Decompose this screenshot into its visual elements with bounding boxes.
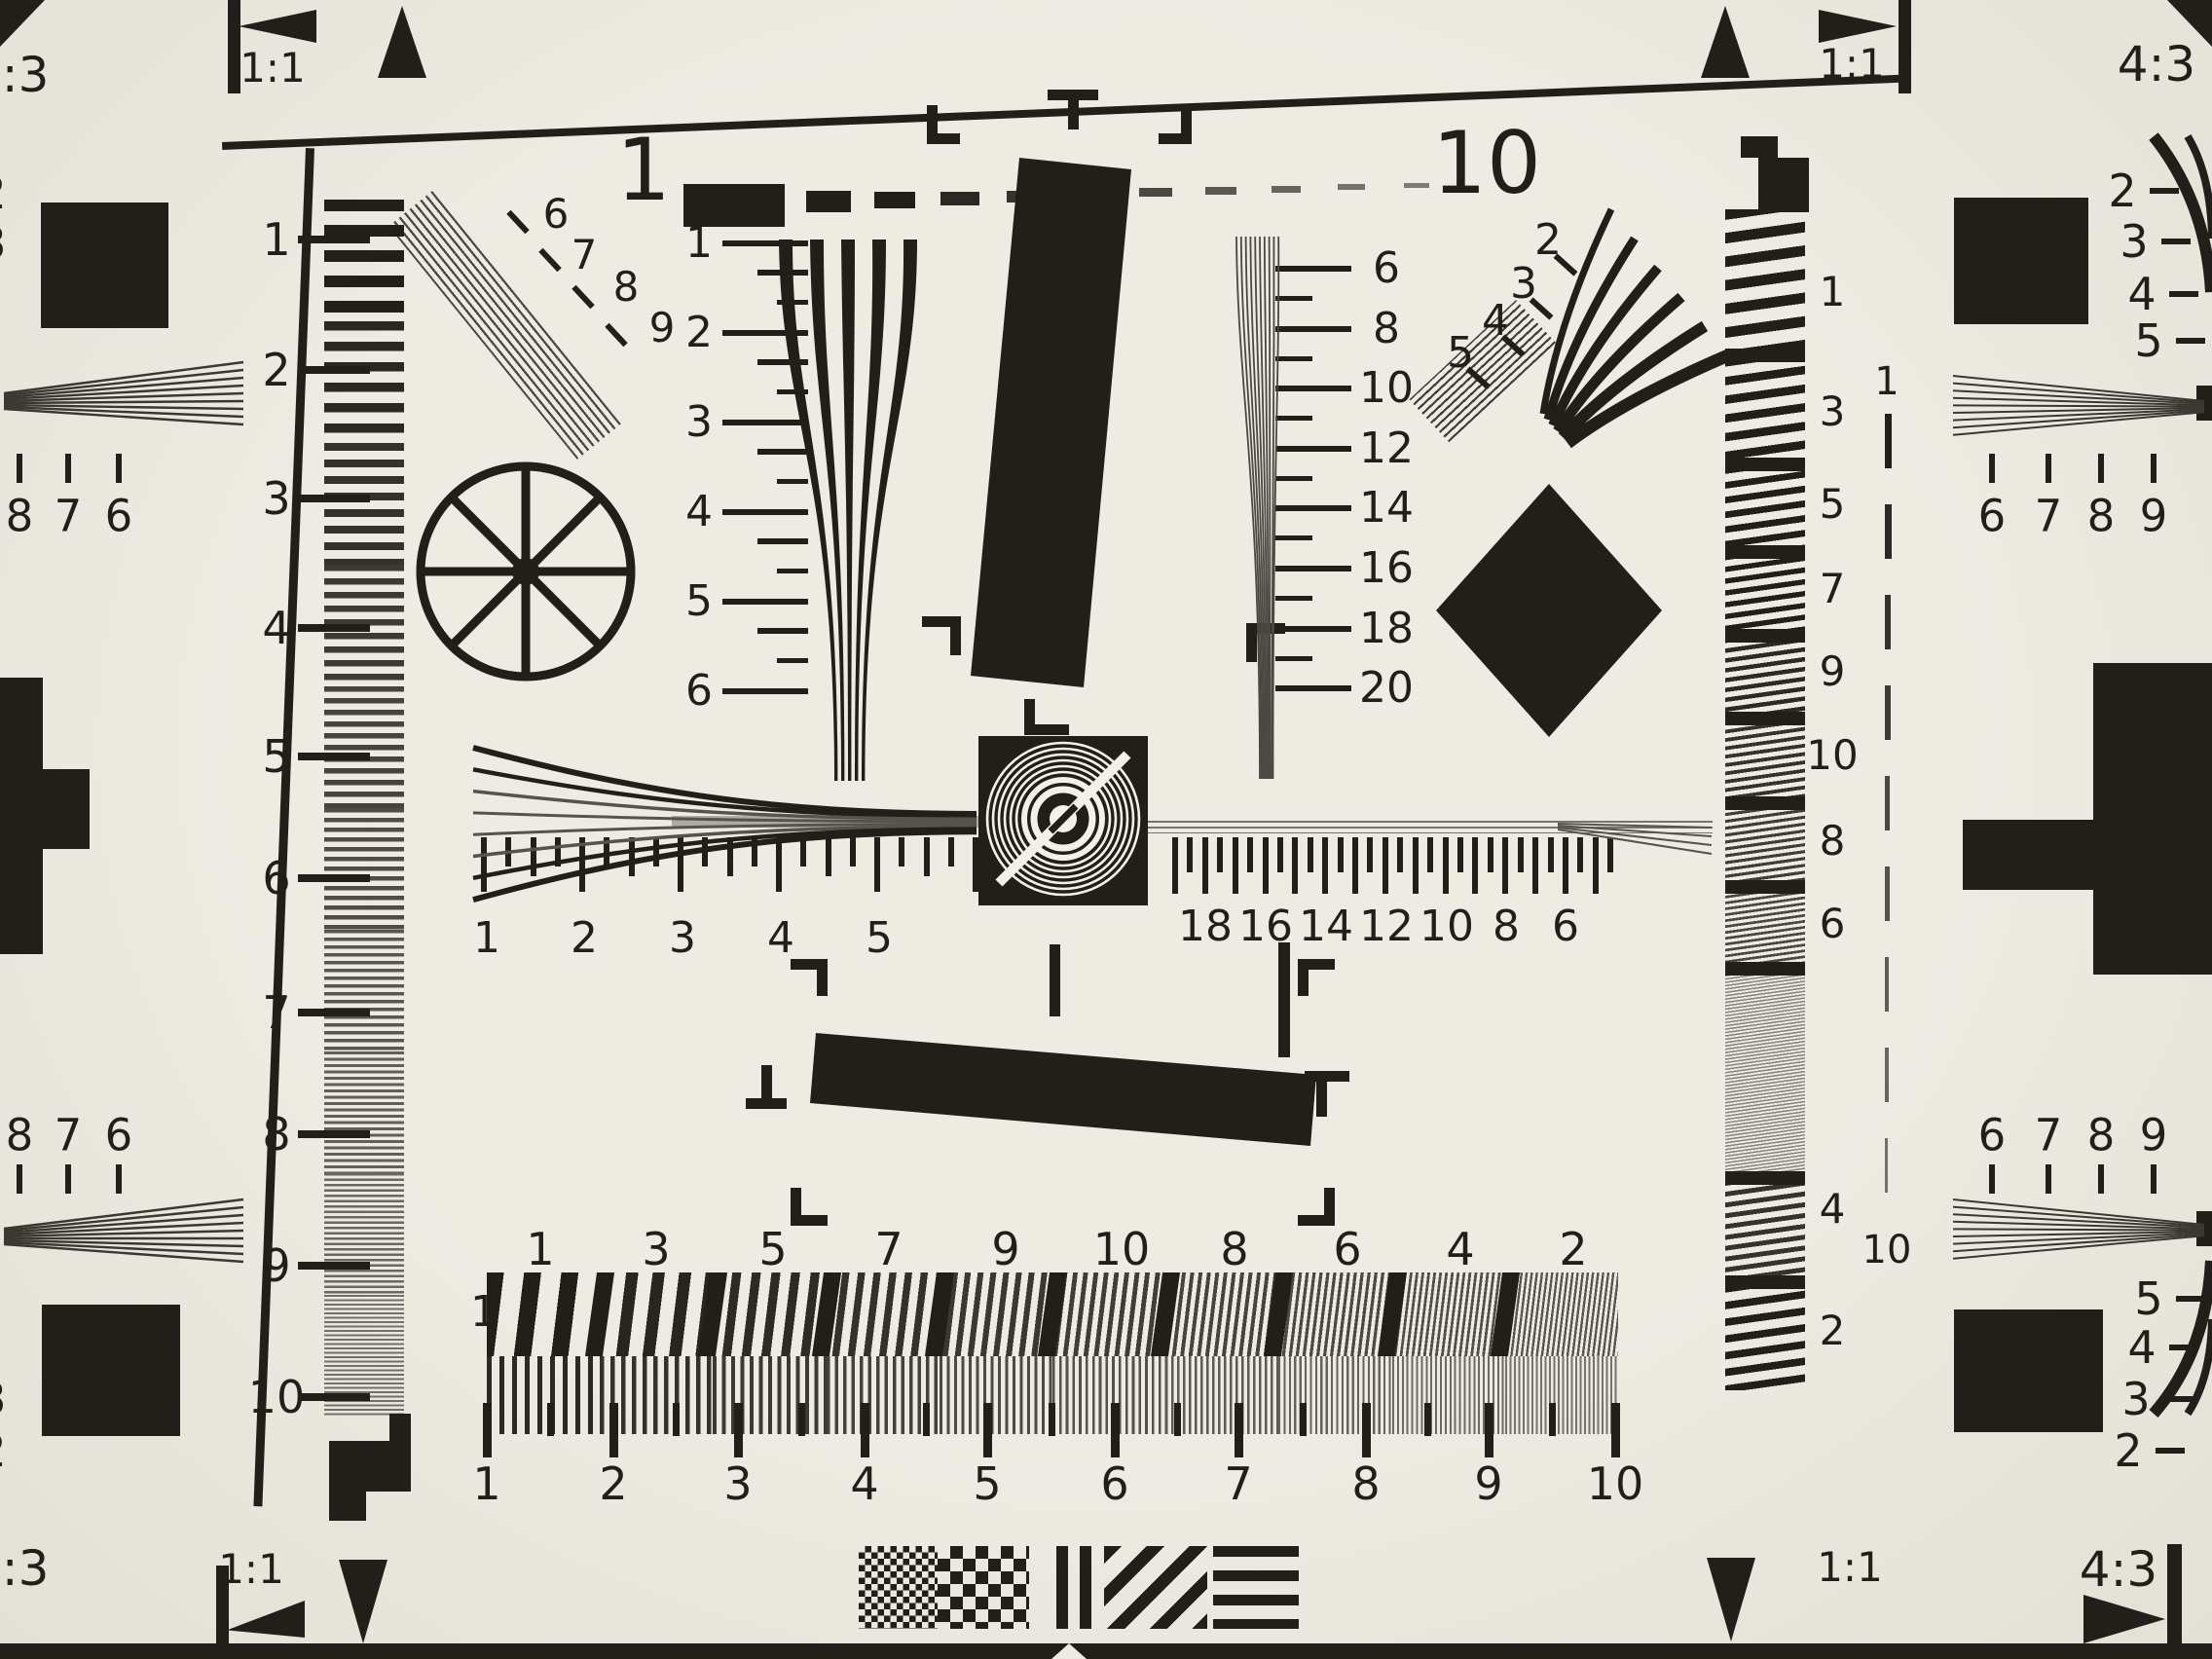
left-ruler-strip-band xyxy=(324,930,404,1051)
bar-upper-band-segment xyxy=(713,1272,826,1356)
bar-top-number: 3 xyxy=(642,1227,670,1272)
center-ruler-right-tick xyxy=(1217,837,1223,872)
center-ruler-right-tick xyxy=(1292,837,1298,894)
left-wedge-tick-med xyxy=(757,628,808,634)
center-ring-target xyxy=(978,736,1148,905)
bar-lower-band-segment xyxy=(1165,1356,1278,1434)
registration-mark xyxy=(1298,1215,1335,1226)
center-ruler-right-tick xyxy=(1247,837,1253,872)
registration-mark xyxy=(817,959,828,996)
center-ruler-right-tick xyxy=(1532,837,1538,894)
pattern-horizontal-bars xyxy=(1213,1546,1299,1629)
right-column-top-blob xyxy=(1721,136,1809,212)
bar-upper-band-segment xyxy=(1505,1272,1618,1356)
black-diamond xyxy=(1436,484,1662,737)
top-ruler-end-label: 10 xyxy=(1432,121,1541,206)
center-ruler-right-tick xyxy=(1427,837,1433,872)
registration-mark xyxy=(1246,623,1257,662)
right-fan-anchor-bottom xyxy=(2196,1211,2212,1246)
ne-fan-tick xyxy=(1554,253,1578,276)
center-ruler-right-tick xyxy=(1263,837,1269,894)
nw-fan-number: 9 xyxy=(649,308,676,349)
edge-fan-number-lt: 6 xyxy=(105,495,133,538)
edge-scale-cut-lt: 3 xyxy=(0,221,7,266)
top-ruler-dash xyxy=(1404,183,1429,188)
bottom-ruler-tick-med xyxy=(1300,1403,1307,1436)
tl-aspect-label: 4:3 xyxy=(0,51,49,99)
bottom-ruler-number: 1 xyxy=(472,1461,500,1506)
edge-fan-tick xyxy=(116,454,122,483)
registration-mark xyxy=(1316,1082,1327,1117)
center-ruler-right-tick xyxy=(1233,837,1238,894)
edge-fan-tick xyxy=(17,454,22,483)
center-ruler-right-tick xyxy=(1548,837,1554,872)
center-ruler-left-number: 2 xyxy=(571,917,598,960)
edge-scale-number-rb: 3 xyxy=(2121,1377,2150,1421)
edge-scale-dash xyxy=(2169,1345,2198,1350)
center-ruler-left-tick xyxy=(531,837,536,876)
edge-fan-number-lt: 8 xyxy=(6,495,34,538)
right-column-divider xyxy=(1725,458,1805,471)
edge-fan-number-rt: 9 xyxy=(2140,495,2168,538)
center-ruler-right-tick xyxy=(1382,837,1388,894)
right-column-section xyxy=(1725,358,1805,460)
right-column-section xyxy=(1725,1285,1805,1390)
edge-scale-cut-lt: 2 xyxy=(0,170,7,215)
registration-mark xyxy=(1298,959,1309,996)
left-ruler-strip-band xyxy=(324,443,404,565)
center-ruler-left-tick xyxy=(752,837,757,866)
center-ruler-right-tick xyxy=(1202,837,1208,894)
bottom-ruler-tick-med xyxy=(1049,1403,1055,1436)
right-column-divider xyxy=(1725,712,1805,725)
right-column-section xyxy=(1725,639,1805,714)
right-column-section xyxy=(1725,806,1805,882)
spoked-wheel-icon xyxy=(421,466,631,677)
nw-fan-tick xyxy=(571,285,594,310)
edge-scale-number-rt: 4 xyxy=(2127,272,2156,316)
center-ruler-right-tick xyxy=(1187,837,1193,872)
center-ruler-right-tick xyxy=(1563,837,1568,894)
center-ruler-left-number: 4 xyxy=(767,917,794,960)
edge-scale-dash xyxy=(2176,1296,2205,1302)
right-dashed-segment xyxy=(1885,685,1891,740)
center-ruler-left-tick xyxy=(579,837,585,892)
left-ruler-end-blob xyxy=(321,1414,411,1521)
right-wedge-number: 14 xyxy=(1359,487,1414,530)
tr-up-triangle xyxy=(1701,6,1750,78)
resolution-test-chart: 4:31:14:31:14:31:14:31:11101234567891067… xyxy=(0,0,2212,1659)
bar-top-number: 1 xyxy=(526,1227,554,1272)
right-dashed-segment xyxy=(1885,1048,1889,1102)
bottom-ruler-tick-long xyxy=(609,1403,618,1457)
pattern-checker-coarse xyxy=(938,1546,1029,1629)
registration-mark xyxy=(1068,100,1079,129)
right-column-divider xyxy=(1725,349,1805,362)
top-ruler-dash xyxy=(1139,188,1172,197)
right-wedge-tick-short xyxy=(1275,656,1312,661)
center-band-left-underlay xyxy=(672,816,978,828)
left-ruler-strip-band xyxy=(324,1295,404,1417)
center-band-right xyxy=(1148,821,1713,833)
bar-upper-band-segment xyxy=(940,1272,1052,1356)
left-ruler-strip-band xyxy=(324,1173,404,1295)
bottom-ruler-tick-med xyxy=(1549,1403,1556,1436)
left-wedge-tick-long xyxy=(722,420,808,425)
pattern-vertical-bars xyxy=(1056,1546,1097,1629)
left-ruler-strip-band xyxy=(324,321,404,443)
right-column-section xyxy=(1725,467,1805,547)
center-ruler-right-number: 6 xyxy=(1552,905,1579,948)
left-ruler-number: 1 xyxy=(262,217,290,262)
top-ruler-dash xyxy=(874,192,915,208)
bottom-ruler-number: 7 xyxy=(1224,1461,1252,1506)
left-wedge-number: 5 xyxy=(685,580,713,623)
registration-mark xyxy=(927,133,960,144)
left-wedge-tick-med xyxy=(757,359,808,365)
right-wedge-number: 8 xyxy=(1373,308,1400,350)
right-column-number: 8 xyxy=(1820,821,1846,862)
bottom-ruler-tick-med xyxy=(1424,1403,1431,1436)
bottom-ruler-tick-long xyxy=(483,1403,492,1457)
right-column-divider xyxy=(1725,796,1805,810)
tl-up-triangle xyxy=(378,6,426,78)
edge-scale-dash xyxy=(2150,188,2179,194)
left-ruler-strip-band xyxy=(324,1051,404,1173)
left-wedge-tick-short xyxy=(777,389,808,394)
center-ruler-right-tick xyxy=(1443,837,1449,894)
bottom-ruler-number: 9 xyxy=(1474,1461,1502,1506)
bar-upper-band-segment xyxy=(1392,1272,1505,1356)
br-down-triangle xyxy=(1707,1558,1755,1641)
bl-aspect-label: 4:3 xyxy=(0,1544,49,1593)
bar-upper-band-segment xyxy=(1052,1272,1165,1356)
center-ruler-right-tick xyxy=(1367,837,1373,872)
center-ruler-left-number: 5 xyxy=(866,917,893,960)
right-dashed-bottom-label: 10 xyxy=(1862,1231,1912,1270)
right-wedge-tick-short xyxy=(1275,596,1312,601)
left-t-bar xyxy=(0,678,43,954)
edge-scale-number-rt: 2 xyxy=(2108,168,2136,213)
bar-top-number: 5 xyxy=(758,1227,787,1272)
left-ruler-number: 6 xyxy=(262,856,290,901)
edge-scale-number-rb: 4 xyxy=(2127,1325,2156,1370)
bl-square-flag-triangle xyxy=(227,1601,305,1638)
center-ruler-left-tick xyxy=(948,837,954,866)
left-ruler-number: 7 xyxy=(262,990,290,1035)
edge-fan-number-rt: 8 xyxy=(2087,495,2116,538)
bar-upper-band-segment xyxy=(1278,1272,1391,1356)
br-square-flag-bar xyxy=(2167,1544,2182,1645)
tr-square-label: 1:1 xyxy=(1819,44,1885,85)
edge-fan-tick xyxy=(65,1164,71,1194)
center-ruler-right-number: 8 xyxy=(1493,905,1520,948)
left-wedge-tick-long xyxy=(722,240,808,246)
left-wedge-tick-short xyxy=(777,569,808,573)
bar-upper-band-segment xyxy=(1165,1272,1278,1356)
bar-lower-band-segment xyxy=(1278,1356,1391,1434)
center-ruler-right-tick xyxy=(1607,837,1613,872)
bar-lower-band-segment xyxy=(487,1356,600,1434)
edge-scale-number-rt: 3 xyxy=(2120,219,2148,264)
right-wedge-number: 20 xyxy=(1359,667,1414,710)
bottom-ruler-tick-long xyxy=(1485,1403,1493,1457)
center-ruler-right-tick xyxy=(1172,837,1178,894)
bottom-ruler-tick-med xyxy=(1174,1403,1181,1436)
left-ruler-strip-band xyxy=(324,565,404,686)
bar-lower-band-segment xyxy=(1505,1356,1618,1434)
left-t-stem xyxy=(43,769,90,849)
right-wedge-tick-long xyxy=(1275,386,1351,391)
edge-fan-tick xyxy=(65,454,71,483)
top-ruler-dash xyxy=(806,191,851,212)
center-ruler-left-number: 1 xyxy=(473,917,500,960)
center-ruler-right-tick xyxy=(1502,837,1508,894)
right-dashed-segment xyxy=(1885,957,1889,1012)
nw-fan-number: 6 xyxy=(543,194,570,235)
bar-top-number: 9 xyxy=(991,1227,1019,1272)
right-column-divider xyxy=(1725,962,1805,976)
center-ruler-right-tick xyxy=(1322,837,1328,894)
center-ruler-right-tick xyxy=(1472,837,1478,894)
edge-fan-number-rt: 6 xyxy=(1978,495,2007,538)
left-ruler-number: 5 xyxy=(262,734,290,779)
left-ruler-strip-band xyxy=(324,200,404,321)
right-column-section xyxy=(1725,1181,1805,1277)
edge-scale-cut-lb: 3 xyxy=(0,1377,7,1421)
tl-square-flag-bar xyxy=(228,0,240,93)
edge-fan-tick xyxy=(116,1164,122,1194)
right-column-number: 4 xyxy=(1820,1189,1846,1230)
tr-black-square xyxy=(1954,198,2088,324)
br-square-label: 1:1 xyxy=(1817,1547,1883,1588)
right-wedge-tick-short xyxy=(1275,476,1312,481)
left-wedge-number: 4 xyxy=(685,491,713,534)
center-ruler-left-tick xyxy=(629,837,635,876)
tr-square-flag-triangle xyxy=(1819,10,1897,43)
left-wedge-tick-long xyxy=(722,599,808,605)
right-column-number: 2 xyxy=(1820,1310,1846,1351)
center-ruler-right-number: 10 xyxy=(1419,905,1474,948)
nw-fan-number: 8 xyxy=(613,267,640,308)
tl-cut-triangle xyxy=(0,0,45,47)
bottom-ruler-number: 4 xyxy=(850,1461,878,1506)
left-ruler-number: 3 xyxy=(262,476,290,521)
center-ruler-right-long-tick xyxy=(1278,942,1290,1057)
right-fine-wedge xyxy=(1236,237,1278,779)
bar-upper-band-segment xyxy=(487,1272,600,1356)
right-wedge-number: 16 xyxy=(1359,547,1414,590)
center-ruler-left-tick xyxy=(826,837,831,876)
bar-top-number: 4 xyxy=(1446,1227,1474,1272)
center-ruler-right-number: 12 xyxy=(1359,905,1414,948)
edge-scale-dash xyxy=(2161,239,2191,244)
left-ruler-strip-band xyxy=(324,686,404,808)
registration-mark xyxy=(746,1098,787,1109)
right-column-number: 7 xyxy=(1820,569,1846,609)
bottom-ruler-tick-med xyxy=(923,1403,930,1436)
edge-scale-number-rb: 2 xyxy=(2114,1428,2142,1473)
top-ruler-dash xyxy=(1272,186,1301,193)
center-ruler-right-tick xyxy=(1593,837,1599,894)
right-wedge-tick-long xyxy=(1275,626,1351,632)
pattern-checker-fine xyxy=(859,1546,938,1629)
edge-scale-dash xyxy=(2163,1396,2193,1402)
center-ruler-left-tick xyxy=(800,837,806,866)
right-wedge-number: 18 xyxy=(1359,608,1414,650)
registration-mark xyxy=(950,616,961,655)
center-ruler-left-tick xyxy=(505,837,511,866)
right-dashed-segment xyxy=(1885,595,1891,649)
bottom-ruler-number: 5 xyxy=(973,1461,1001,1506)
center-ruler-left-tick xyxy=(727,837,733,876)
center-ruler-left-tick xyxy=(604,837,609,866)
left-wedge-number: 6 xyxy=(685,670,713,713)
bottom-ruler-tick-long xyxy=(1362,1403,1371,1457)
registration-mark xyxy=(1305,1071,1349,1082)
pattern-diagonal-bars xyxy=(1104,1546,1207,1629)
edge-scale-dash xyxy=(2176,338,2205,344)
right-column-divider xyxy=(1725,545,1805,559)
left-wedge-number: 1 xyxy=(685,222,713,265)
bottom-ruler-tick-med xyxy=(798,1403,805,1436)
registration-mark xyxy=(1159,133,1192,144)
left-wedge-tick-med xyxy=(757,538,808,544)
bar-top-number: 7 xyxy=(874,1227,903,1272)
bar-lower-band-segment xyxy=(940,1356,1052,1434)
right-dashed-segment xyxy=(1885,504,1892,559)
right-wedge-number: 6 xyxy=(1373,247,1400,290)
left-wedge-tick-med xyxy=(757,449,808,455)
right-column-number: 1 xyxy=(1820,272,1846,313)
right-dashed-top-label: 1 xyxy=(1874,362,1899,401)
mid-diagonal-bar xyxy=(810,1031,1316,1148)
registration-mark xyxy=(791,1215,828,1226)
right-column-number: 10 xyxy=(1806,735,1858,776)
left-wedge-tick-long xyxy=(722,688,808,694)
right-column-divider xyxy=(1725,629,1805,643)
bar-top-number: 8 xyxy=(1220,1227,1248,1272)
left-ruler-number: 4 xyxy=(262,606,290,650)
right-wedge-tick-long xyxy=(1275,566,1351,571)
center-ruler-left-number: 3 xyxy=(669,917,696,960)
center-ruler-right-tick xyxy=(1413,837,1419,894)
center-ruler-right-tick xyxy=(1308,837,1313,872)
left-wedge-tick-long xyxy=(722,330,808,336)
edge-fan-number-rb: 9 xyxy=(2140,1114,2168,1158)
edge-fan-tick xyxy=(17,1164,22,1194)
right-wedge-tick-long xyxy=(1275,326,1351,332)
ne-fan-tick xyxy=(1530,297,1554,319)
right-column-number: 3 xyxy=(1820,391,1846,432)
edge-fan-number-rt: 7 xyxy=(2035,495,2063,538)
top-ruler-start-label: 1 xyxy=(616,128,671,213)
edge-fan-tick xyxy=(2098,454,2104,483)
edge-fan-number-rb: 7 xyxy=(2035,1114,2063,1158)
edge-fan-number-lt: 7 xyxy=(55,495,83,538)
tl-square-label: 1:1 xyxy=(240,48,306,89)
left-ruler-number: 10 xyxy=(248,1375,306,1419)
edge-fan-tick xyxy=(2151,454,2157,483)
bottom-ruler-number: 2 xyxy=(599,1461,627,1506)
registration-mark xyxy=(1048,90,1098,100)
edge-scale-cut-lb: 2 xyxy=(0,1428,7,1473)
bottom-ruler-tick-long xyxy=(861,1403,869,1457)
right-column-number: 5 xyxy=(1820,484,1846,525)
center-ruler-left-tick xyxy=(924,837,930,876)
bar-top-number: 2 xyxy=(1559,1227,1587,1272)
bar-top-number: 6 xyxy=(1333,1227,1361,1272)
left-ruler-number: 2 xyxy=(262,348,290,392)
right-wedge-tick-long xyxy=(1275,685,1351,691)
edge-fan-tick xyxy=(2098,1164,2104,1194)
right-wedge-tick-short xyxy=(1275,296,1312,301)
bottom-ruler-tick-long xyxy=(734,1403,743,1457)
bottom-ruler-tick-med xyxy=(673,1403,680,1436)
right-dashed-segment xyxy=(1885,1138,1888,1193)
bottom-ruler-tick-long xyxy=(1111,1403,1120,1457)
center-ruler-left-tick xyxy=(973,837,978,892)
center-ruler-left-tick xyxy=(850,837,856,866)
edge-fan-tick xyxy=(1989,1164,1995,1194)
right-column-divider xyxy=(1725,1275,1805,1289)
bar-upper-band-segment xyxy=(600,1272,713,1356)
nw-fan-number: 7 xyxy=(571,235,598,276)
bl-down-triangle xyxy=(339,1560,387,1643)
right-column-section xyxy=(1725,890,1805,964)
right-wedge-tick-long xyxy=(1275,266,1351,272)
edge-fan-number-lb: 6 xyxy=(105,1114,133,1158)
right-wedge-tick-short xyxy=(1275,535,1312,540)
nw-fan-tick xyxy=(506,210,529,235)
edge-fan-number-rb: 8 xyxy=(2087,1114,2116,1158)
left-ruler-number: 8 xyxy=(262,1112,290,1157)
right-t-stem xyxy=(1963,820,2093,890)
bar-top-number: 10 xyxy=(1093,1227,1151,1272)
bottom-ruler-number: 3 xyxy=(723,1461,752,1506)
tl-square-flag-triangle xyxy=(239,10,316,43)
chart-top-border-line xyxy=(222,74,1907,150)
center-ruler-right-tick xyxy=(1277,837,1283,872)
edge-fan-number-rb: 6 xyxy=(1978,1114,2007,1158)
center-ruler-left-tick xyxy=(874,837,880,892)
br-square-flag-triangle xyxy=(2083,1595,2165,1643)
right-dashed-segment xyxy=(1885,866,1890,921)
left-wedge-number: 2 xyxy=(685,312,713,354)
left-wedge-tick-long xyxy=(722,509,808,515)
edge-fan-tick xyxy=(1989,454,1995,483)
right-wedge-number: 10 xyxy=(1359,367,1414,410)
right-column-divider xyxy=(1725,880,1805,894)
tr-square-flag-bar xyxy=(1899,0,1911,93)
edge-fan-number-lb: 7 xyxy=(55,1114,83,1158)
left-ruler-strip-band xyxy=(324,808,404,930)
right-column-number: 6 xyxy=(1820,903,1846,944)
center-ruler-left-tick xyxy=(776,837,782,892)
center-ruler-right-tick xyxy=(1488,837,1493,872)
right-column-section xyxy=(1725,555,1805,631)
ne-curved-blade-fan xyxy=(1543,209,1728,443)
right-wedge-number: 12 xyxy=(1359,427,1414,470)
edge-scale-dash xyxy=(2156,1448,2185,1454)
center-ruler-right-tick xyxy=(1338,837,1344,872)
top-ruler-dash xyxy=(940,192,979,205)
right-column-section xyxy=(1725,209,1805,350)
edge-fan-number-lb: 8 xyxy=(6,1114,34,1158)
bottom-ruler-tick-long xyxy=(1235,1403,1243,1457)
edge-scale-number-rt: 5 xyxy=(2134,318,2162,363)
right-wedge-tick-long xyxy=(1275,505,1351,511)
